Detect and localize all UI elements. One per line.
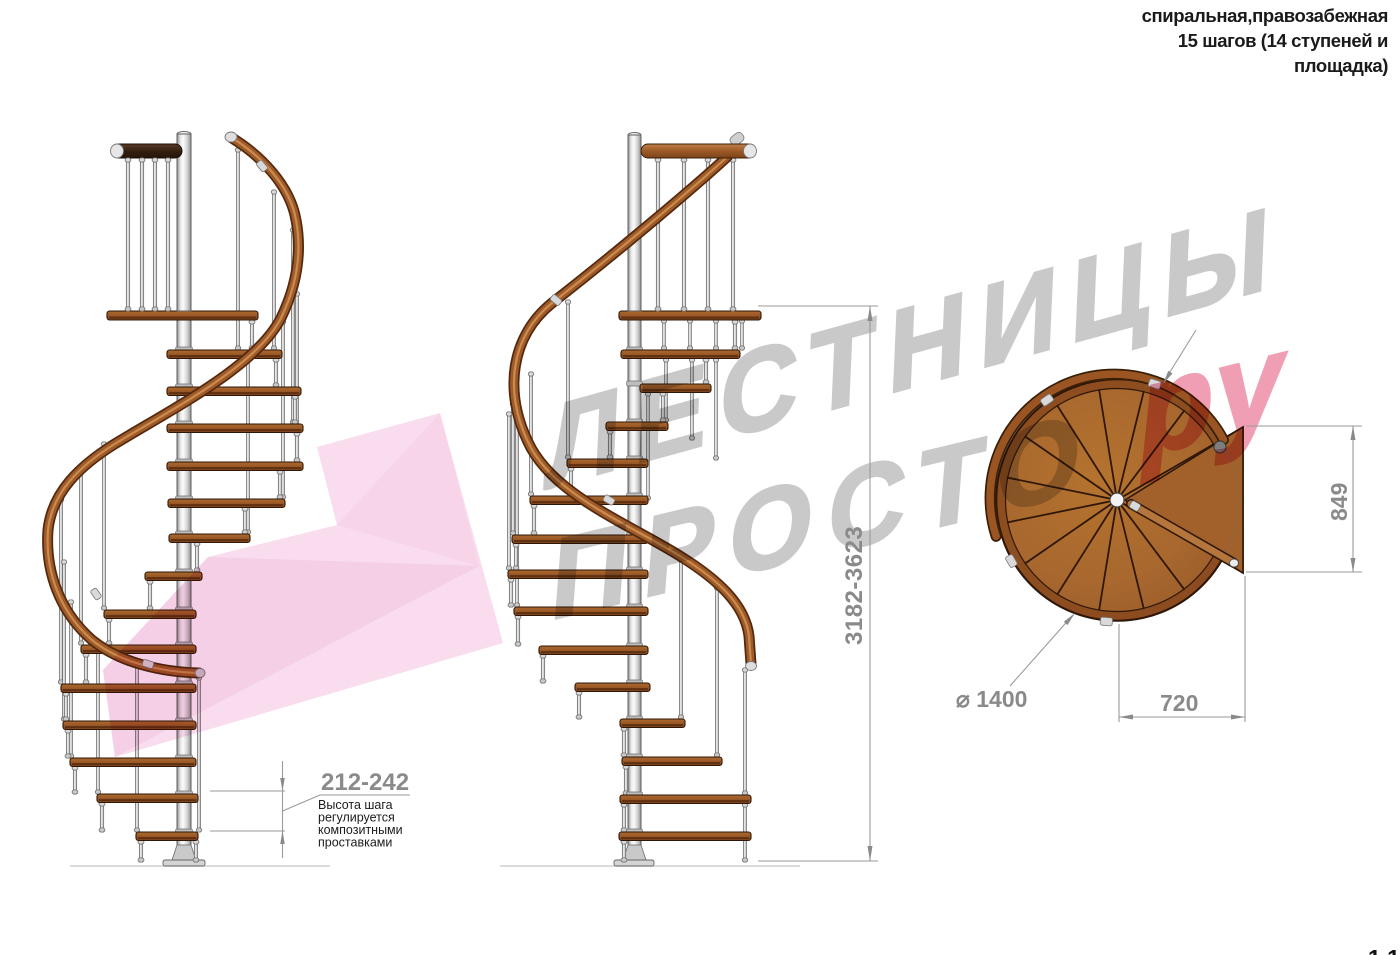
- svg-text:⌀ 1400: ⌀ 1400: [956, 686, 1027, 712]
- svg-text:Высота шагарегулируетсякомпози: Высота шагарегулируетсякомпозитнымипрост…: [318, 798, 403, 850]
- svg-text:849: 849: [1326, 483, 1352, 521]
- svg-text:1.15: 1.15: [1368, 945, 1400, 955]
- svg-text:720: 720: [1160, 690, 1198, 716]
- svg-text:3182-3623: 3182-3623: [841, 526, 868, 645]
- svg-text:212-242: 212-242: [321, 769, 409, 796]
